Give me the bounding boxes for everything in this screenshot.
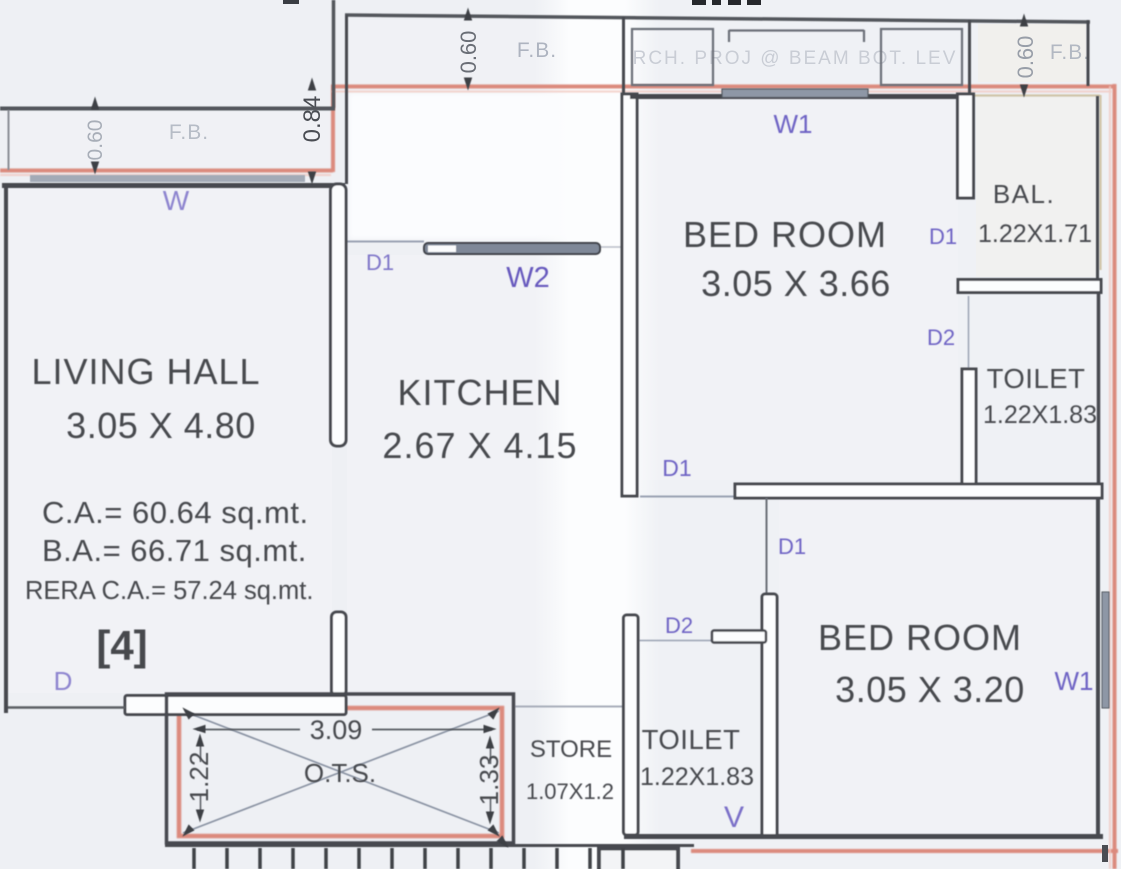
- svg-text:W1: W1: [1055, 666, 1094, 696]
- svg-text:D2: D2: [665, 613, 693, 638]
- svg-text:F.B.: F.B.: [1050, 41, 1090, 64]
- svg-text:W2: W2: [506, 262, 550, 294]
- svg-text:C.A.= 60.64 sq.mt.: C.A.= 60.64 sq.mt.: [42, 495, 309, 530]
- svg-text:D1: D1: [929, 224, 957, 249]
- svg-text:3.09: 3.09: [310, 715, 363, 745]
- svg-text:3.05 X 3.20: 3.05 X 3.20: [835, 669, 1025, 710]
- svg-text:TOILET: TOILET: [642, 724, 741, 755]
- svg-text:1.33: 1.33: [474, 755, 504, 806]
- svg-text:3.05 X 3.66: 3.05 X 3.66: [701, 263, 891, 304]
- svg-text:STORE: STORE: [530, 736, 612, 763]
- svg-text:1.07X1.2: 1.07X1.2: [526, 779, 614, 804]
- svg-text:F.B.: F.B.: [169, 121, 209, 144]
- svg-text:1.22X1.83: 1.22X1.83: [983, 401, 1097, 429]
- svg-text:0.60: 0.60: [456, 31, 481, 74]
- svg-text:F.B.: F.B.: [517, 39, 557, 62]
- svg-text:RERA C.A.= 57.24 sq.mt.: RERA C.A.= 57.24 sq.mt.: [25, 577, 313, 605]
- svg-text:3.05 X 4.80: 3.05 X 4.80: [66, 405, 256, 446]
- svg-text:D2: D2: [927, 325, 955, 350]
- svg-text:0.60: 0.60: [1013, 36, 1038, 79]
- svg-text:D1: D1: [778, 534, 806, 559]
- svg-text:D1: D1: [366, 250, 394, 275]
- svg-text:0.60: 0.60: [84, 120, 107, 161]
- svg-text:1.22: 1.22: [184, 752, 214, 803]
- svg-text:KITCHEN: KITCHEN: [397, 372, 562, 413]
- svg-text:O.T.S.: O.T.S.: [304, 758, 376, 788]
- svg-text:LIVING HALL: LIVING HALL: [31, 351, 260, 392]
- svg-text:BED ROOM: BED ROOM: [683, 214, 887, 255]
- svg-text:0.84: 0.84: [299, 96, 326, 143]
- svg-text:1.22X1.83: 1.22X1.83: [640, 763, 754, 791]
- svg-text:BED ROOM: BED ROOM: [818, 617, 1022, 658]
- svg-text:D1: D1: [662, 455, 691, 481]
- svg-text:RCH. PROJ @ BEAM BOT. LEV: RCH. PROJ @ BEAM BOT. LEV: [633, 48, 958, 69]
- svg-text:B.A.= 66.71 sq.mt.: B.A.= 66.71 sq.mt.: [42, 533, 307, 568]
- svg-text:W1: W1: [774, 109, 813, 139]
- svg-text:1.22X1.71: 1.22X1.71: [978, 220, 1092, 248]
- svg-text:BAL.: BAL.: [993, 179, 1055, 209]
- svg-text:[4]: [4]: [96, 622, 147, 669]
- svg-text:V: V: [724, 801, 744, 834]
- svg-text:2.67 X 4.15: 2.67 X 4.15: [382, 425, 577, 466]
- svg-text:TOILET: TOILET: [987, 363, 1086, 394]
- svg-text:D: D: [54, 666, 73, 696]
- svg-text:W: W: [163, 185, 190, 216]
